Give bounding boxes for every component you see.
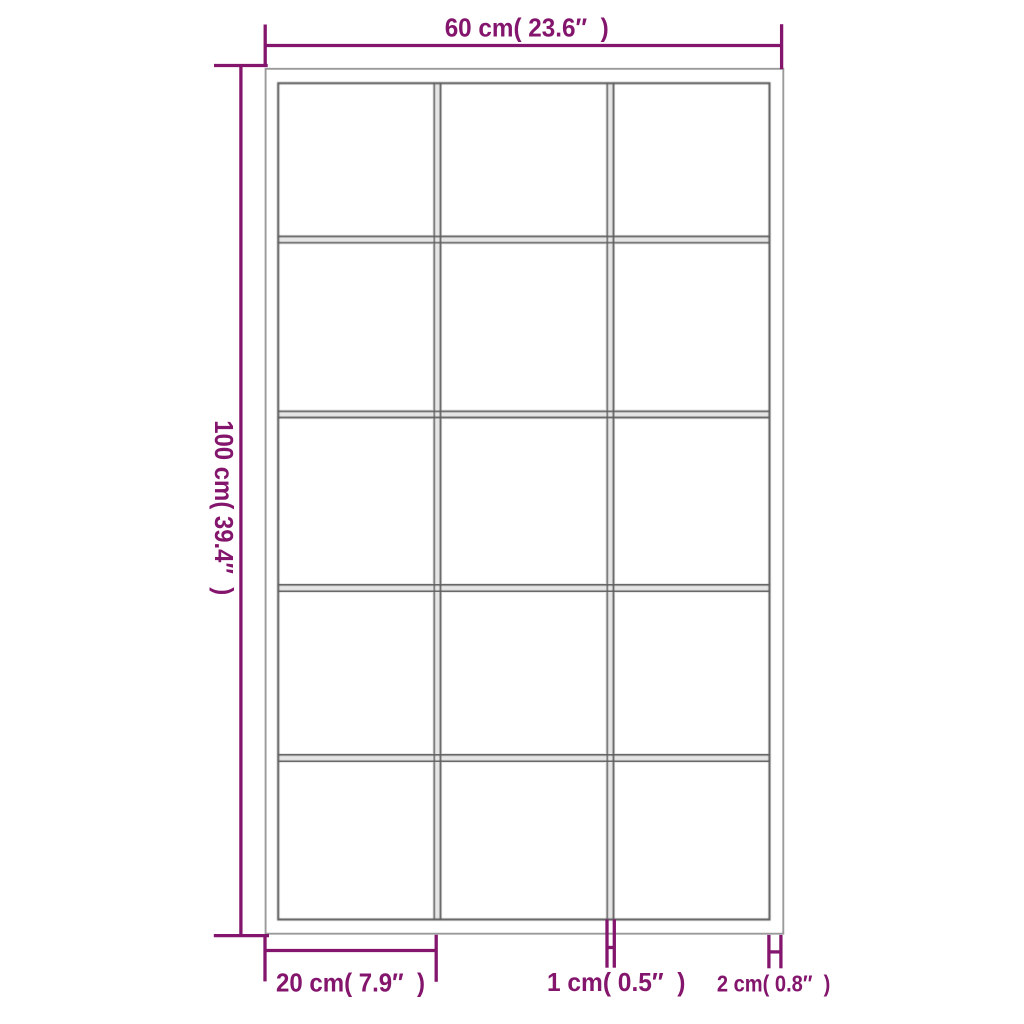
svg-text:60 cm( 23.6″ ): 60 cm( 23.6″ ) — [445, 12, 609, 42]
svg-text:2 cm( 0.8″ ): 2 cm( 0.8″ ) — [717, 970, 831, 996]
svg-text:100 cm( 39.4″ ): 100 cm( 39.4″ ) — [209, 420, 239, 595]
svg-text:1 cm( 0.5″ ): 1 cm( 0.5″ ) — [547, 967, 686, 997]
svg-text:20 cm( 7.9″ ): 20 cm( 7.9″ ) — [276, 968, 425, 998]
